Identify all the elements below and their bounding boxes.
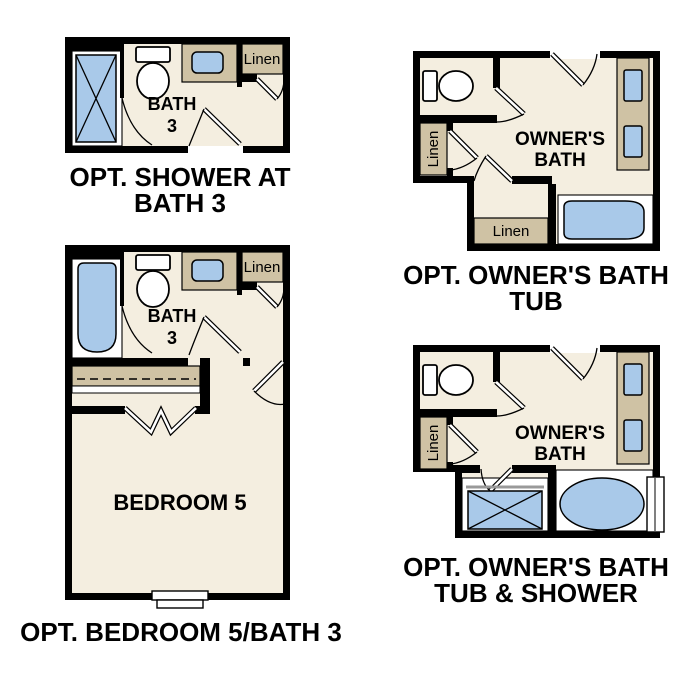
linen-label: Linen bbox=[244, 51, 281, 68]
wall-segment bbox=[65, 245, 124, 259]
wall-segment bbox=[420, 409, 497, 417]
wall-segment bbox=[200, 358, 210, 414]
linen-label: Linen bbox=[425, 425, 442, 462]
plan-bath3-shower: Linen BATH 3 OPT. SHOWER AT BATH 3 bbox=[65, 37, 291, 218]
wall-segment bbox=[237, 252, 242, 295]
caption: OPT. BEDROOM 5/BATH 3 bbox=[20, 617, 342, 647]
bathtub bbox=[78, 263, 116, 352]
sink bbox=[624, 70, 642, 101]
room-label-owners: OWNER'S bbox=[515, 423, 605, 444]
room-label-owners: OWNER'S bbox=[515, 129, 605, 150]
room-label-bath: BATH bbox=[534, 444, 585, 465]
wall-segment bbox=[65, 37, 124, 51]
caption: BATH 3 bbox=[134, 188, 226, 218]
wall-segment bbox=[65, 406, 125, 414]
bathtub bbox=[564, 201, 644, 239]
entry-opening bbox=[188, 146, 243, 154]
sink bbox=[624, 420, 642, 451]
wall-segment bbox=[512, 465, 552, 473]
sink bbox=[624, 126, 642, 157]
room-label-bath3: BATH bbox=[148, 306, 197, 326]
wall-segment bbox=[120, 259, 124, 306]
linen-label: Linen bbox=[425, 131, 442, 168]
oval-bathtub bbox=[560, 478, 644, 530]
shelf-edge bbox=[72, 386, 200, 393]
room-label-bath3-number: 3 bbox=[167, 116, 177, 136]
room-label-bath3: BATH bbox=[148, 94, 197, 114]
plan-owners-bath-tub: Linen Linen OWNER'S BATH OPT. OWNER'S BA… bbox=[403, 50, 669, 316]
linen-label: Linen bbox=[244, 259, 281, 276]
wall-segment bbox=[242, 74, 257, 82]
room-label-bath3-number: 3 bbox=[167, 328, 177, 348]
sink bbox=[192, 260, 223, 281]
wall-segment bbox=[65, 358, 188, 366]
plan-bedroom5-bath3: Linen BATH 3 BEDROOM 5 OPT. BEDROOM 5/B bbox=[20, 245, 342, 647]
wall-segment bbox=[237, 44, 242, 87]
floorplan-options-canvas: Linen BATH 3 OPT. SHOWER AT BATH 3 Linen bbox=[0, 0, 687, 687]
wall-segment bbox=[548, 184, 556, 244]
wall-segment bbox=[493, 352, 500, 382]
room-label-bath: BATH bbox=[534, 150, 585, 171]
sink bbox=[624, 364, 642, 395]
toilet-bowl bbox=[439, 365, 473, 395]
wall-segment bbox=[243, 358, 250, 366]
toilet-bowl bbox=[439, 71, 473, 101]
toilet-tank bbox=[423, 365, 437, 395]
toilet-tank bbox=[423, 71, 437, 101]
sink bbox=[192, 52, 223, 73]
wall-segment bbox=[548, 465, 556, 538]
wall-segment bbox=[420, 115, 497, 123]
linen-label: Linen bbox=[493, 223, 530, 240]
caption: TUB bbox=[509, 286, 562, 316]
caption: TUB & SHOWER bbox=[434, 578, 638, 608]
room-label-bedroom5: BEDROOM 5 bbox=[113, 490, 246, 515]
plan-owners-bath-tub-shower: Linen OWNER'S BATH OPT. OWNER'S BATH T bbox=[403, 344, 669, 608]
toilet-tank bbox=[136, 255, 170, 270]
toilet-bowl bbox=[137, 271, 169, 307]
window bbox=[157, 600, 203, 608]
wall-segment bbox=[455, 465, 480, 473]
wall-segment bbox=[242, 282, 257, 290]
wall-segment bbox=[493, 58, 500, 88]
wall-segment bbox=[512, 176, 552, 184]
wall-segment bbox=[120, 51, 124, 98]
toilet-tank bbox=[136, 47, 170, 62]
closet-shelf bbox=[72, 366, 200, 386]
window bbox=[152, 591, 208, 600]
